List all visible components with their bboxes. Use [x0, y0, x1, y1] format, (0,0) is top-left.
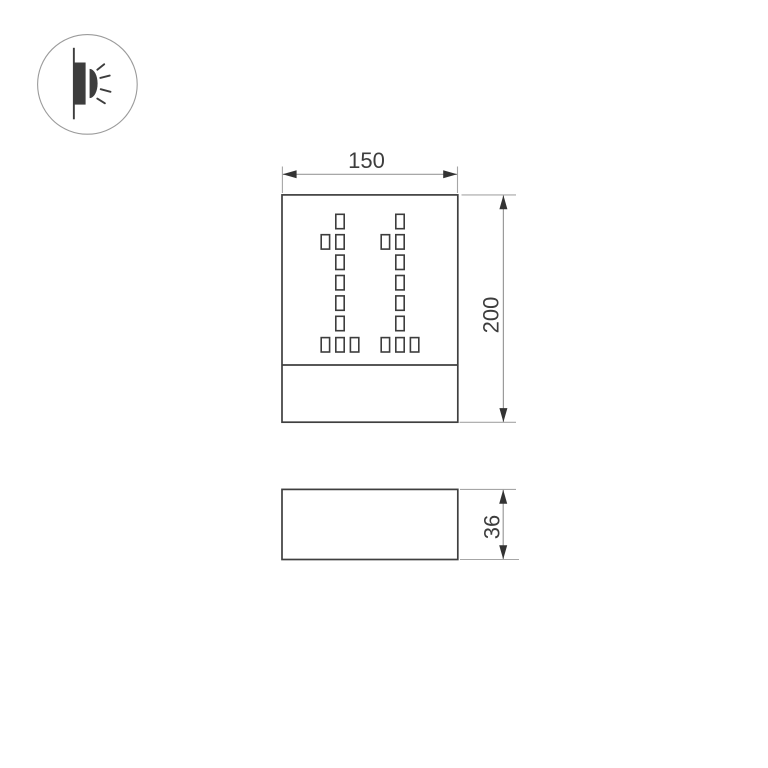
svg-text:200: 200: [479, 297, 504, 334]
svg-text:36: 36: [480, 515, 505, 539]
svg-text:150: 150: [348, 148, 385, 173]
